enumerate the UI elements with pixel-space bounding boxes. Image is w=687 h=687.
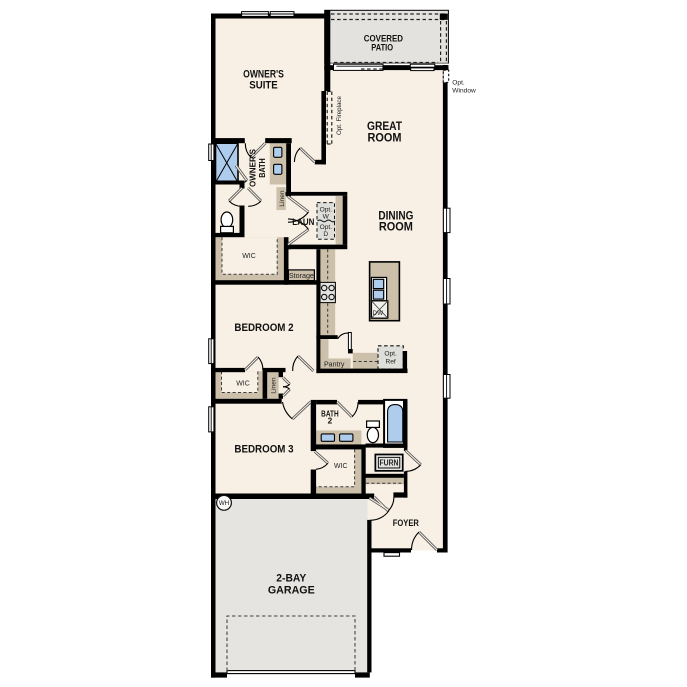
- svg-text:OWNER'S: OWNER'S: [243, 68, 284, 80]
- svg-text:BEDROOM 3: BEDROOM 3: [234, 444, 293, 456]
- svg-text:GARAGE: GARAGE: [268, 585, 315, 597]
- svg-text:WIC: WIC: [334, 463, 348, 470]
- svg-text:LAUN: LAUN: [292, 217, 314, 228]
- svg-text:DW: DW: [373, 310, 384, 317]
- svg-text:Linen: Linen: [271, 377, 278, 393]
- svg-text:WH: WH: [219, 500, 229, 507]
- svg-text:2: 2: [328, 415, 333, 425]
- svg-text:D: D: [323, 231, 328, 238]
- svg-text:2-BAY: 2-BAY: [276, 573, 306, 585]
- svg-text:Opt.: Opt.: [320, 206, 333, 213]
- svg-text:FOYER: FOYER: [393, 518, 419, 528]
- svg-text:Opt.: Opt.: [384, 351, 397, 358]
- svg-text:Opt. Fireplace: Opt. Fireplace: [336, 96, 343, 135]
- svg-text:BEDROOM 2: BEDROOM 2: [234, 322, 293, 334]
- svg-text:WIC: WIC: [236, 380, 250, 387]
- svg-text:Window: Window: [452, 88, 476, 95]
- svg-text:Opt.: Opt.: [452, 80, 465, 87]
- svg-text:Linen: Linen: [279, 190, 286, 206]
- svg-text:W: W: [323, 213, 330, 220]
- svg-text:BATH: BATH: [257, 158, 267, 178]
- svg-text:Pantry: Pantry: [324, 359, 345, 368]
- svg-text:ROOM: ROOM: [379, 220, 413, 234]
- svg-text:SUITE: SUITE: [249, 80, 278, 92]
- svg-text:Ref: Ref: [385, 359, 395, 366]
- svg-text:FURN: FURN: [380, 459, 399, 468]
- svg-text:PATIO: PATIO: [371, 42, 393, 52]
- svg-text:Opt.: Opt.: [320, 224, 333, 231]
- svg-text:ROOM: ROOM: [368, 131, 402, 145]
- svg-text:Storage: Storage: [289, 271, 314, 280]
- svg-text:WIC: WIC: [242, 253, 256, 260]
